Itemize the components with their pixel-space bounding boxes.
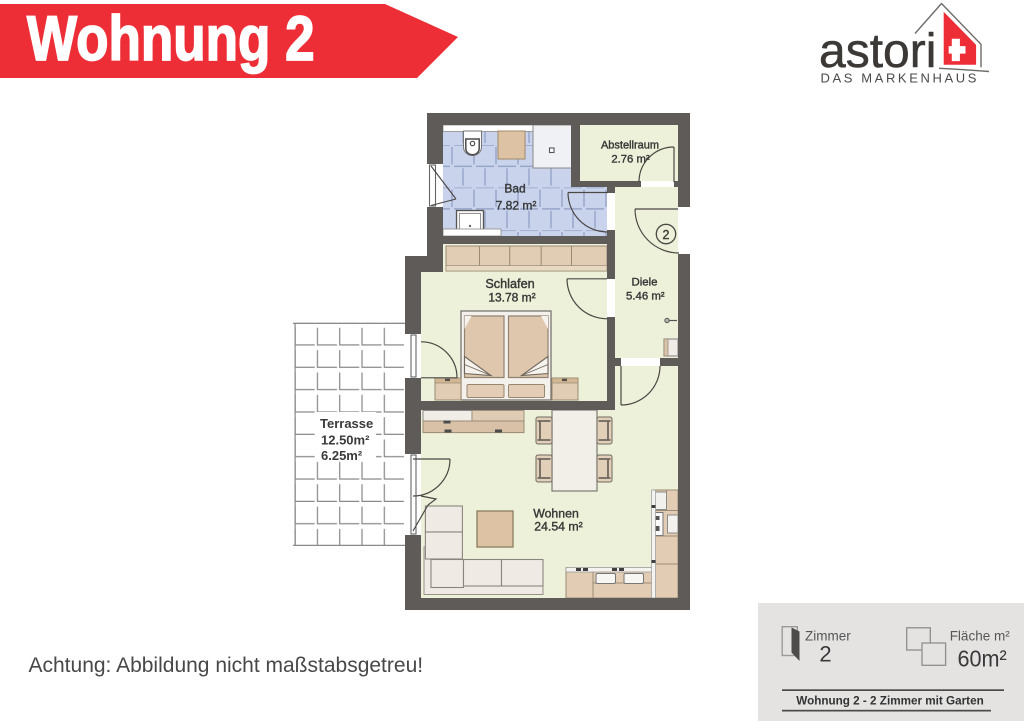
svg-text:Wohnung 2 - 2 Zimmer mit Garte: Wohnung 2 - 2 Zimmer mit Garten: [796, 694, 983, 707]
svg-text:Diele: Diele: [632, 277, 658, 289]
svg-text:5.46 m²: 5.46 m²: [626, 290, 665, 302]
svg-text:2.76 m²: 2.76 m²: [611, 153, 650, 165]
svg-text:6.25m²: 6.25m²: [321, 448, 363, 463]
svg-text:13.78 m²: 13.78 m²: [488, 291, 535, 305]
svg-text:24.54 m²: 24.54 m²: [534, 520, 583, 534]
svg-text:Terrasse: Terrasse: [320, 416, 373, 431]
svg-text:7.82 m²: 7.82 m²: [496, 199, 537, 213]
svg-text:Bad: Bad: [504, 182, 525, 196]
svg-text:12.50m²: 12.50m²: [321, 433, 370, 448]
svg-text:Fläche m²: Fläche m²: [950, 628, 1011, 643]
svg-text:Wohnung 2: Wohnung 2: [27, 4, 315, 74]
svg-text:60m²: 60m²: [958, 646, 1007, 672]
svg-text:DAS MARKENHAUS: DAS MARKENHAUS: [821, 70, 979, 85]
svg-text:Wohnen: Wohnen: [533, 507, 579, 521]
svg-text:2: 2: [663, 228, 670, 242]
svg-text:Achtung: Abbildung nicht maßst: Achtung: Abbildung nicht maßstabsgetreu!: [29, 654, 424, 677]
svg-text:Schlafen: Schlafen: [485, 277, 534, 291]
svg-text:2: 2: [819, 641, 831, 666]
svg-text:Abstellraum: Abstellraum: [601, 140, 659, 152]
